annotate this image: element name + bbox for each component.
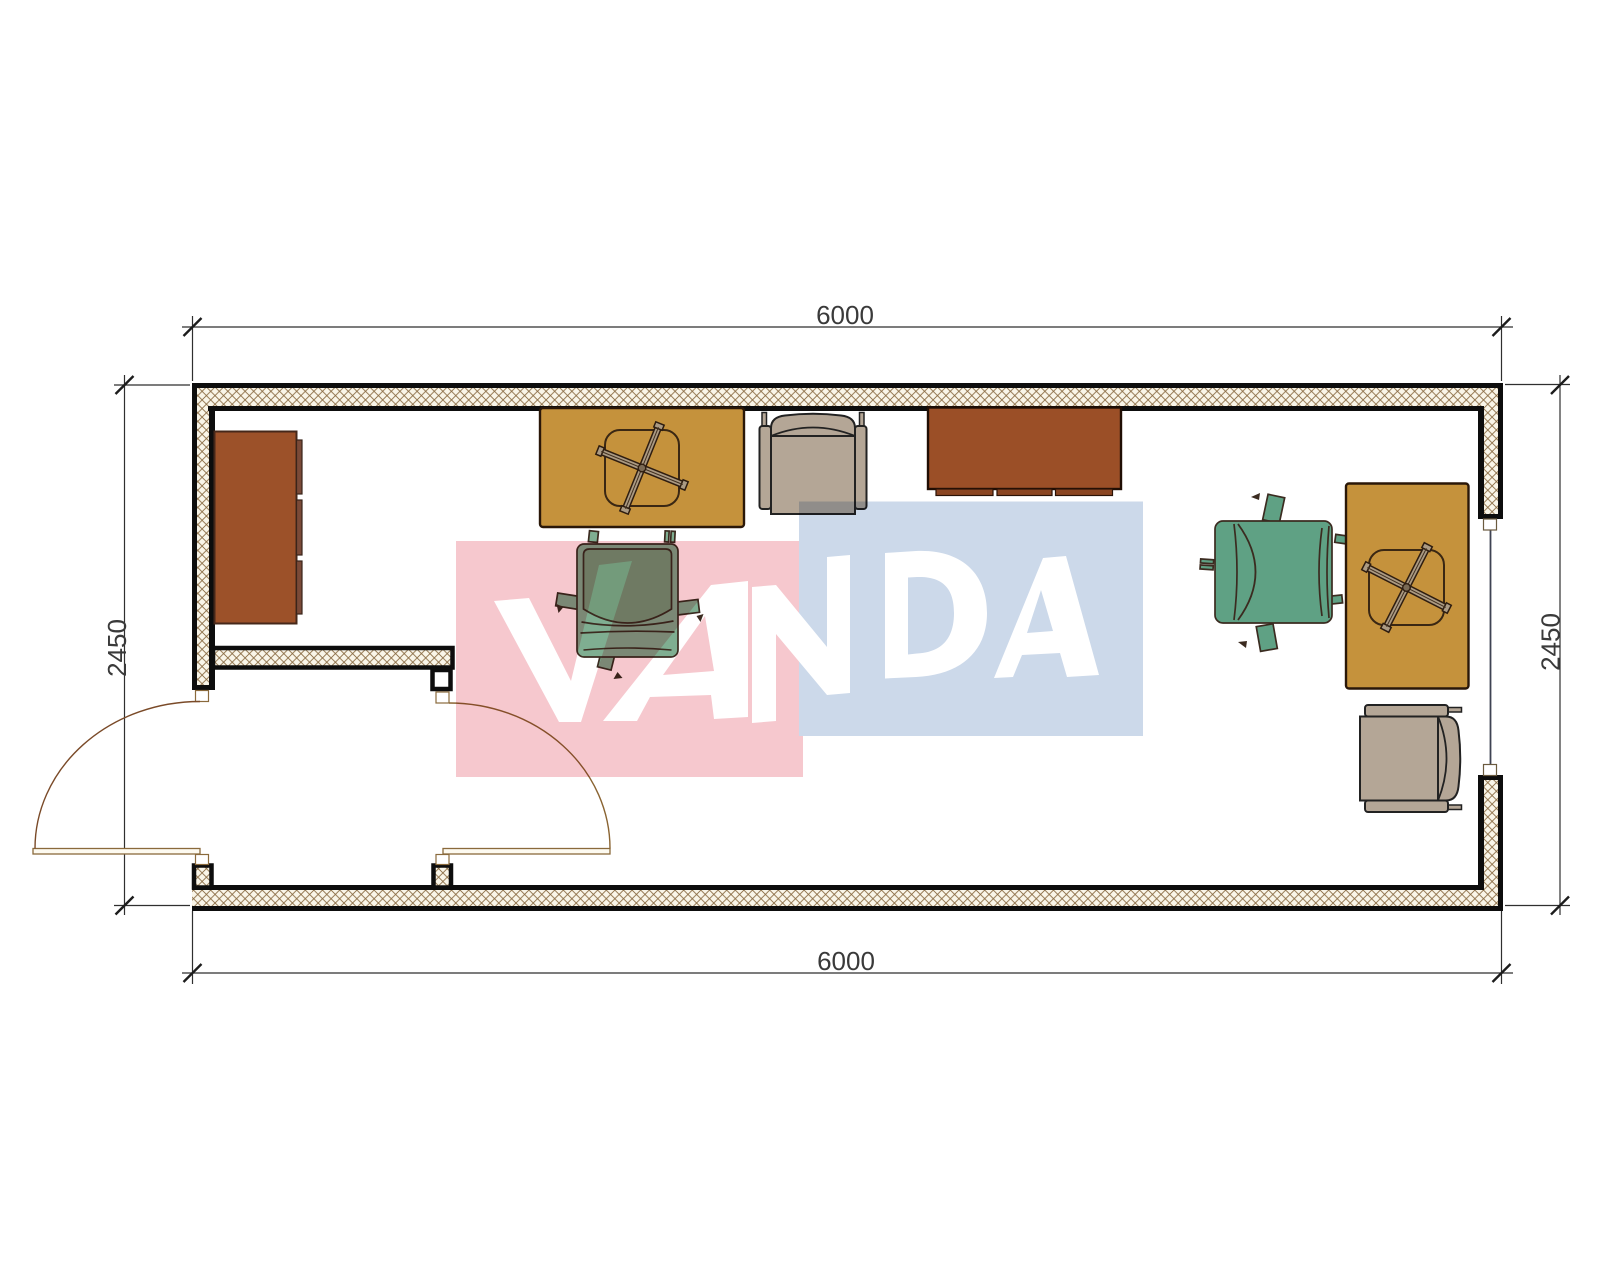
- svg-text:6000: 6000: [817, 946, 875, 976]
- svg-text:2450: 2450: [1536, 613, 1566, 671]
- svg-text:6000: 6000: [816, 300, 874, 330]
- svg-text:2450: 2450: [102, 619, 132, 677]
